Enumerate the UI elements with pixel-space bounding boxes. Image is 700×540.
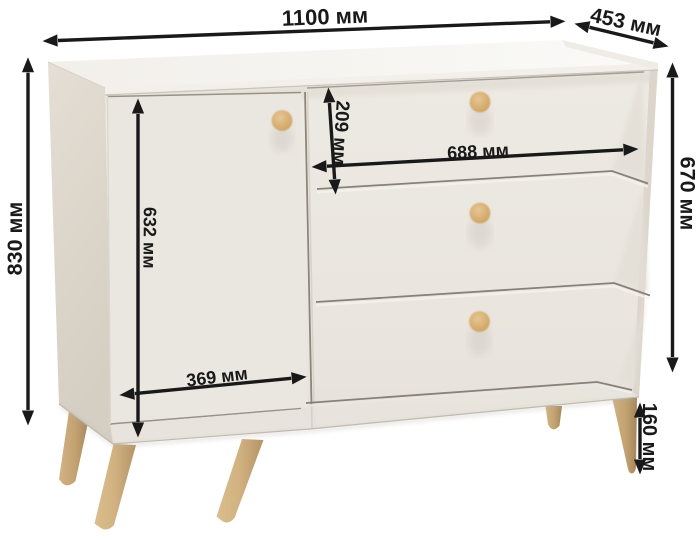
svg-text:1100 мм: 1100 мм bbox=[281, 3, 368, 31]
svg-text:160 мм: 160 мм bbox=[638, 403, 660, 472]
svg-text:688 мм: 688 мм bbox=[447, 140, 510, 163]
svg-text:830 мм: 830 мм bbox=[3, 202, 27, 276]
svg-text:209 мм: 209 мм bbox=[328, 100, 353, 166]
svg-text:632 мм: 632 мм bbox=[139, 207, 160, 269]
svg-text:670 мм: 670 мм bbox=[676, 157, 700, 231]
